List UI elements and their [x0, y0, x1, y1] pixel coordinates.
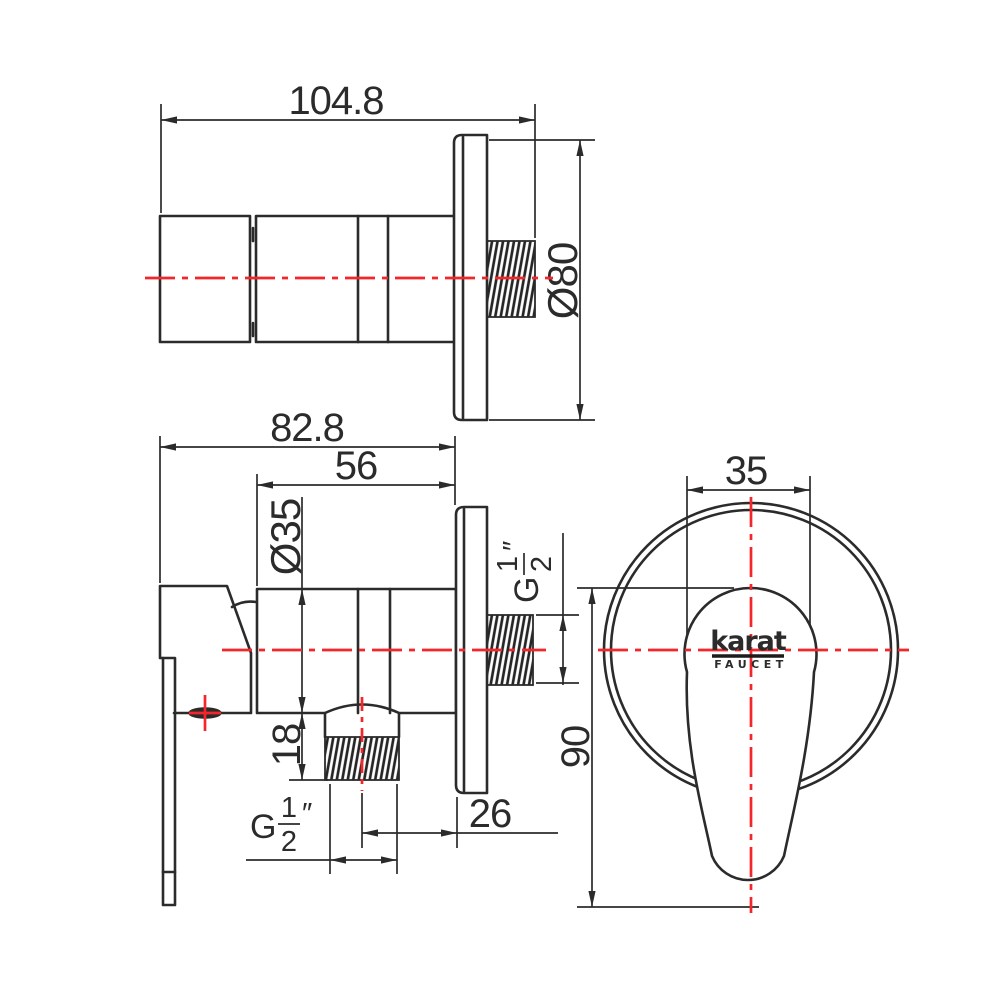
dim-bottom-thread-spec: G 1 2 ″ — [246, 784, 397, 874]
arrowhead — [687, 486, 703, 493]
dim-handle-width-label: 35 — [725, 449, 768, 493]
brand-name: karat — [710, 626, 787, 657]
dim-outlet-to-wall-label: 26 — [469, 792, 512, 836]
brand-tagline: FAUCET — [714, 658, 787, 671]
thread-prefix: G — [508, 577, 546, 603]
dim-bottom-thread-length-label: 18 — [265, 724, 309, 767]
arrowhead — [519, 116, 535, 123]
technical-drawing-page: 104.8 Ø80 — [0, 0, 1000, 1000]
outline — [232, 602, 256, 607]
thread-prefix: G — [250, 808, 276, 846]
brand-logo: karat FAUCET — [710, 626, 788, 671]
thread-denominator: 2 — [526, 556, 558, 572]
arrowhead — [330, 856, 346, 863]
arrowhead — [362, 829, 378, 836]
arrowhead — [576, 140, 583, 156]
arrowhead — [588, 891, 595, 907]
arrowhead — [381, 856, 397, 863]
front-view-lever-blade — [163, 658, 175, 905]
arrowhead — [257, 481, 273, 488]
top-view: 104.8 Ø80 — [145, 79, 595, 420]
thread-denominator: 2 — [281, 826, 297, 858]
thread-spec-label: G 1 2 ″ — [250, 792, 312, 858]
arrowhead — [559, 615, 566, 631]
thread-numerator: 1 — [281, 792, 297, 824]
dim-body-diameter-label: Ø35 — [262, 499, 309, 575]
arrowhead — [439, 481, 455, 488]
bottom-thread-hatch — [325, 737, 399, 780]
faucet-dimension-drawing: 104.8 Ø80 — [0, 0, 1000, 1000]
inch-mark: ″ — [498, 541, 530, 551]
arrowhead — [161, 116, 177, 123]
dim-top-length-label: 104.8 — [288, 79, 383, 123]
dim-front-overall-label: 82.8 — [270, 406, 344, 450]
arrowhead — [160, 443, 176, 450]
side-view: 35 90 karat FAUCET — [554, 449, 909, 913]
thread-numerator: 1 — [492, 556, 524, 572]
arrowhead — [794, 486, 810, 493]
dim-handle-width: 35 — [687, 449, 810, 494]
dim-front-body-label: 56 — [335, 444, 378, 488]
dim-handle-height-label: 90 — [554, 726, 598, 769]
inch-mark: ″ — [302, 798, 312, 830]
dim-outlet-to-wall: 26 — [362, 792, 558, 848]
front-view: 82.8 56 Ø35 18 26 — [160, 406, 579, 905]
thread-spec-label-rotated: G 1 2 ″ — [492, 541, 558, 603]
arrowhead — [576, 404, 583, 420]
arrowhead — [439, 443, 455, 450]
arrowhead — [559, 667, 566, 683]
arrowhead — [588, 588, 595, 604]
dim-flange-diameter-label: Ø80 — [539, 243, 586, 319]
arrowhead — [441, 829, 457, 836]
